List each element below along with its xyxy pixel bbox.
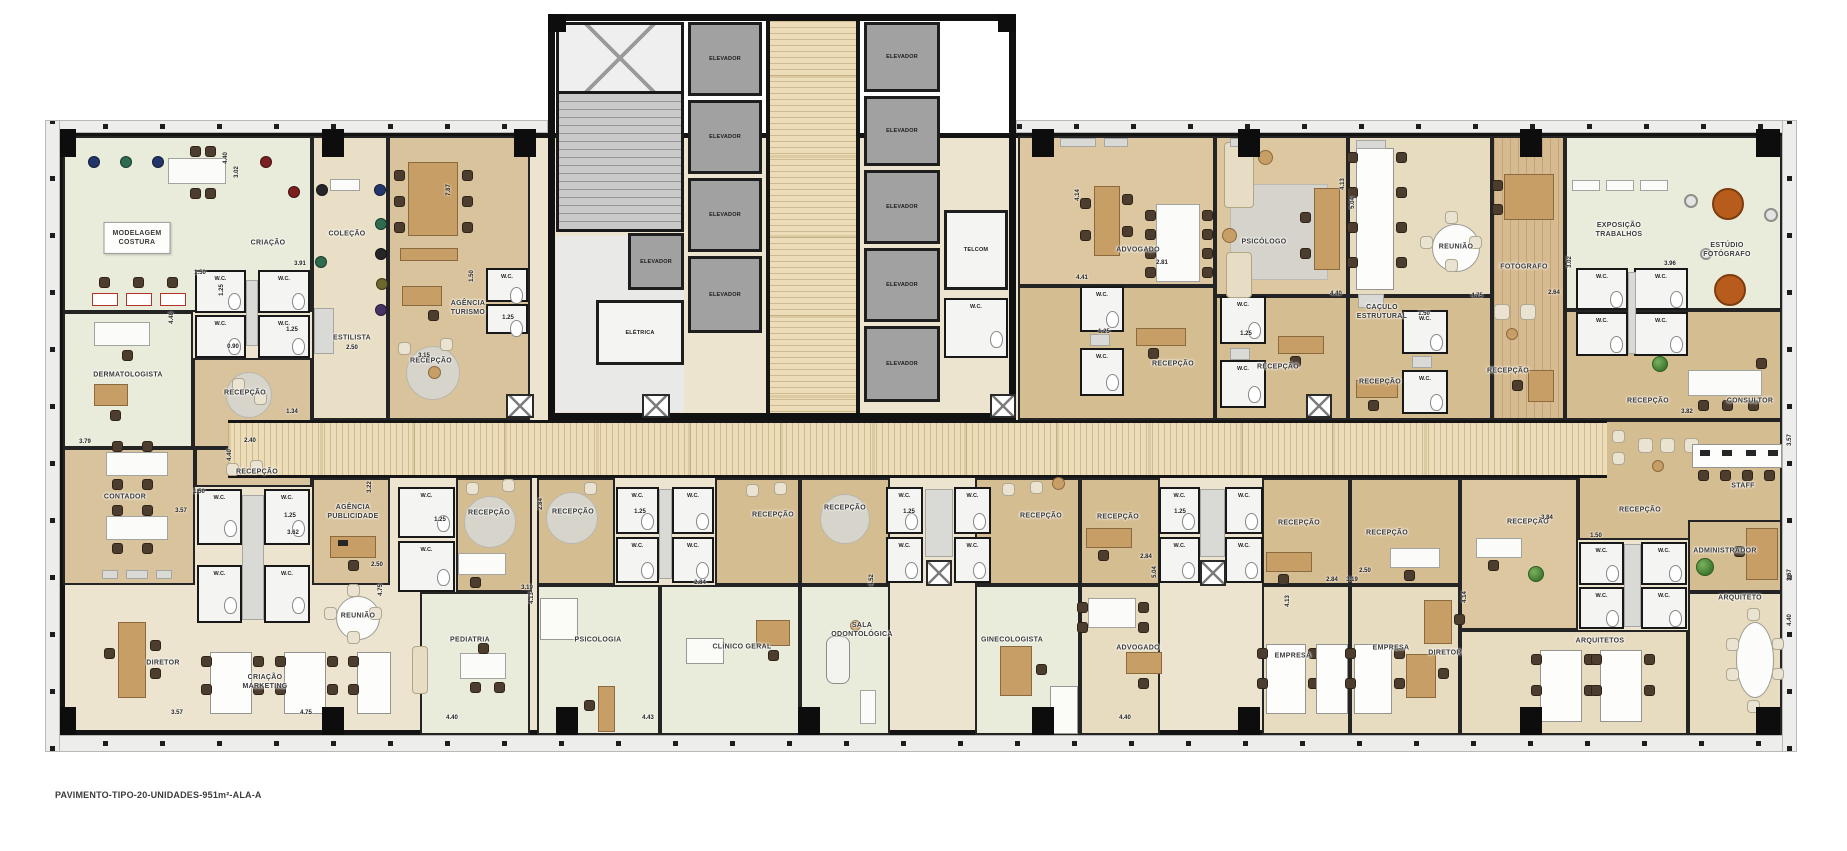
dimension-label: 4.40 xyxy=(1330,291,1342,297)
room-label: ADVOGADO xyxy=(1116,245,1160,254)
room-label: CONSULTOR xyxy=(1727,396,1773,405)
furniture-chair xyxy=(1591,685,1602,696)
furniture-chair xyxy=(142,505,153,516)
furniture-chair xyxy=(190,188,201,199)
dimension-label: 1.25 xyxy=(219,284,225,296)
furniture-chair xyxy=(1347,152,1358,163)
furniture-chair xyxy=(1488,560,1499,571)
wc-cell: W.C. xyxy=(954,537,991,583)
wc-label: W.C. xyxy=(1578,274,1626,280)
elevator-label: ELEVADOR xyxy=(886,204,918,210)
furniture-armchair xyxy=(1445,259,1458,272)
dimension-label: 3.84 xyxy=(1541,515,1553,521)
wc-label: W.C. xyxy=(1082,354,1122,360)
toilet-icon xyxy=(905,513,918,530)
dimension-label: 1.25 xyxy=(284,513,296,519)
wc-label: W.C. xyxy=(1161,493,1198,499)
furniture-chair xyxy=(1077,602,1088,613)
dimension-label: 2.84 xyxy=(538,498,544,510)
dimension-label: 4.14 xyxy=(1462,591,1468,603)
dimension-label: 3.02 xyxy=(234,166,240,178)
wc-cell: W.C. xyxy=(197,565,242,623)
furniture-chair xyxy=(122,350,133,361)
dimension-label: 4.40 xyxy=(227,449,233,461)
structural-column xyxy=(1520,707,1542,735)
toilet-icon xyxy=(1610,291,1623,308)
furniture-chair xyxy=(275,656,286,667)
furniture-mannequin-dot xyxy=(315,256,327,268)
furniture-desk-white xyxy=(1640,180,1668,191)
wc-label: W.C. xyxy=(1404,376,1446,382)
dimension-label: 1.50 xyxy=(1590,533,1602,539)
furniture-couch xyxy=(412,646,428,694)
furniture-chair xyxy=(1300,212,1311,223)
elevator-label: ELEVADOR xyxy=(709,212,741,218)
room-label: RECEPÇÃO xyxy=(752,510,794,519)
dimension-label: 1.25 xyxy=(434,517,446,523)
furniture-plant xyxy=(1696,558,1714,576)
dimension-label: 4.14 xyxy=(1075,189,1081,201)
furniture-desk-wood xyxy=(1314,188,1340,270)
furniture-chair xyxy=(1698,470,1709,481)
furniture-stool xyxy=(1222,228,1237,243)
furniture-armchair xyxy=(1494,304,1510,320)
furniture-chair xyxy=(1300,248,1311,259)
toilet-icon xyxy=(905,562,918,579)
dimension-label: 4.52 xyxy=(869,574,875,586)
dimension-label: 2.40 xyxy=(244,438,256,444)
furniture-armchair xyxy=(440,338,453,351)
furniture-desk-wood xyxy=(1266,552,1312,572)
dimension-label: 2.50 xyxy=(346,345,358,351)
furniture-armchair xyxy=(1747,608,1760,621)
floor-plan: PAVIMENTO-TIPO-20-UNIDADES-951m²-ALA-A E… xyxy=(0,0,1847,851)
wc-label: W.C. xyxy=(956,493,989,499)
furniture-desk-wood xyxy=(402,286,442,306)
furniture-chair xyxy=(142,479,153,490)
furniture-equipment xyxy=(242,495,264,620)
toilet-icon xyxy=(1106,374,1119,391)
furniture-chair xyxy=(110,410,121,421)
furniture-chair xyxy=(205,188,216,199)
furniture-armchair xyxy=(746,484,759,497)
furniture-workstation-bench xyxy=(1354,644,1392,714)
structural-column xyxy=(60,129,76,157)
elevator-cell: ELEVADOR xyxy=(688,256,762,333)
dimension-label: 4.43 xyxy=(642,715,654,721)
dimension-label: 3.96 xyxy=(1664,261,1676,267)
elevator-cell: ELEVADOR xyxy=(688,100,762,174)
elevator-label: ELEVADOR xyxy=(709,292,741,298)
dimension-label: 3.57 xyxy=(1787,434,1793,446)
furniture-equipment xyxy=(314,308,334,354)
wc-label: W.C. xyxy=(956,543,989,549)
dimension-label: 3.67 xyxy=(1787,569,1793,581)
ledge-bottom xyxy=(45,735,1797,752)
room-label: RECEPÇÃO xyxy=(1487,366,1529,375)
plan-caption: PAVIMENTO-TIPO-20-UNIDADES-951m²-ALA-A xyxy=(55,790,262,800)
wc-label: W.C. xyxy=(197,321,244,327)
furniture-chair xyxy=(1278,574,1289,585)
toilet-icon xyxy=(641,513,654,530)
furniture-desk-white xyxy=(460,653,506,679)
room-label: RECEPÇÃO xyxy=(824,503,866,512)
furniture-chair xyxy=(1036,664,1047,675)
furniture-chair xyxy=(201,656,212,667)
dimension-label: 1.25 xyxy=(634,509,646,515)
furniture-workstation-bench xyxy=(1316,644,1348,714)
furniture-chair xyxy=(1698,400,1709,411)
furniture-chair xyxy=(462,170,473,181)
furniture-mannequin-dot xyxy=(152,156,164,168)
furniture-armchair xyxy=(1726,668,1739,681)
toilet-icon xyxy=(641,562,654,579)
elevator-cell: ELEVADOR xyxy=(688,22,762,96)
room-label: EXPOSIÇÃO TRABALHOS xyxy=(1596,221,1643,239)
furniture-chair xyxy=(1368,400,1379,411)
elevator-cell: ELEVADOR xyxy=(864,326,940,402)
furniture-desk-white xyxy=(106,516,168,540)
furniture-exam-bed xyxy=(1050,686,1078,734)
telcom-room: TELCOM xyxy=(944,210,1008,290)
wc-cell: W.C. xyxy=(1579,542,1624,585)
dimension-label: 2.84 xyxy=(694,580,706,586)
wc-cell: W.C. xyxy=(672,487,714,534)
dimension-label: 5.04 xyxy=(1350,197,1356,209)
wc-cell: W.C. xyxy=(486,268,528,302)
furniture-chair xyxy=(1148,348,1159,359)
dimension-label: 1.50 xyxy=(194,270,206,276)
furniture-chair xyxy=(1145,210,1156,221)
dimension-label: 3.57 xyxy=(175,508,187,514)
furniture-mannequin-dot xyxy=(288,186,300,198)
furniture-armchair xyxy=(502,479,515,492)
furniture-equipment xyxy=(1356,140,1386,149)
toilet-icon xyxy=(510,320,523,337)
room-label: RECEPÇÃO xyxy=(468,508,510,517)
dimension-label: 2.64 xyxy=(1548,290,1560,296)
furniture-desk-white xyxy=(1688,370,1762,396)
furniture-workstation-bench xyxy=(357,652,391,714)
structural-column xyxy=(556,707,578,735)
elevator-label: ELEVADOR xyxy=(886,128,918,134)
toilet-icon xyxy=(1670,336,1683,353)
wc-label: W.C. xyxy=(400,493,453,499)
furniture-equipment xyxy=(156,570,172,579)
room-label: STAFF xyxy=(1731,481,1755,490)
furniture-studio-light xyxy=(1764,208,1778,222)
wc-cell: W.C. xyxy=(886,537,923,583)
furniture-chair xyxy=(1122,194,1133,205)
elevator-cell: ELEVADOR xyxy=(864,22,940,92)
furniture-chair xyxy=(1492,180,1503,191)
elevator-label: ELEVADOR xyxy=(886,361,918,367)
furniture-round-table-orange xyxy=(1712,188,1744,220)
furniture-oval-table xyxy=(1736,622,1774,698)
room-label: MODELAGEM COSTURA xyxy=(104,222,171,254)
dimension-label: 4.75 xyxy=(300,710,312,716)
furniture-equipment xyxy=(246,280,258,346)
furniture-desk-white xyxy=(1572,180,1600,191)
furniture-desk-white xyxy=(860,690,876,724)
furniture-chair xyxy=(142,441,153,452)
wc-cell: W.C. xyxy=(197,489,242,545)
furniture-desk-white xyxy=(106,452,168,476)
toilet-icon xyxy=(1182,562,1195,579)
furniture-chair xyxy=(1644,654,1655,665)
furniture-chair xyxy=(150,668,161,679)
furniture-armchair xyxy=(1520,304,1536,320)
toilet-icon xyxy=(990,331,1003,348)
room-label: AGÊNCIA PUBLICIDADE xyxy=(327,503,378,521)
dimension-label: 0.90 xyxy=(227,344,239,350)
furniture-desk-white xyxy=(1156,204,1200,282)
furniture-chair xyxy=(1394,678,1405,689)
room-label: EMPRESA xyxy=(1275,651,1312,660)
furniture-mannequin-dot xyxy=(374,184,386,196)
furniture-chair xyxy=(470,577,481,588)
furniture-workstation-bench xyxy=(1600,650,1642,722)
furniture-equipment xyxy=(102,570,118,579)
wc-label: W.C. xyxy=(1581,593,1622,599)
toilet-icon xyxy=(437,569,450,586)
elevator-label: ELEVADOR xyxy=(886,282,918,288)
furniture-desk-white xyxy=(330,179,360,191)
furniture-chair xyxy=(494,682,505,693)
wc-cell: W.C. xyxy=(398,541,455,592)
toilet-icon xyxy=(1606,565,1619,582)
furniture-sewing-machine xyxy=(160,293,186,306)
room-label: RECEPÇÃO xyxy=(1152,359,1194,368)
furniture-chair xyxy=(1454,614,1465,625)
elevator-label: ELEVADOR xyxy=(709,56,741,62)
dimension-label: 1.50 xyxy=(1418,311,1430,317)
wc-cell: W.C. xyxy=(258,270,310,313)
furniture-desk-white xyxy=(94,322,150,346)
wc-cell: W.C. xyxy=(672,537,714,583)
service-shaft xyxy=(642,394,670,418)
furniture-chair xyxy=(327,656,338,667)
room-label: PSICÓLOGO xyxy=(1241,237,1286,246)
furniture-chair xyxy=(462,196,473,207)
wc-label: W.C. xyxy=(1581,548,1622,554)
furniture-armchair xyxy=(1030,481,1043,494)
wc-label: W.C. xyxy=(1636,274,1686,280)
main-corridor xyxy=(228,420,1607,478)
dimension-label: 3.19 xyxy=(1346,577,1358,583)
wc-cell: W.C. xyxy=(1579,587,1624,629)
toilet-icon xyxy=(1245,562,1258,579)
dimension-label: 2.84 xyxy=(1326,577,1338,583)
toilet-icon xyxy=(973,513,986,530)
dimension-label: 2.50 xyxy=(1359,568,1371,574)
furniture-chair xyxy=(768,650,779,661)
room-label: CRIAÇÃO xyxy=(251,238,286,247)
dimension-label: 4.13 xyxy=(529,592,535,604)
toilet-icon xyxy=(696,513,709,530)
furniture-chair xyxy=(1404,570,1415,581)
furniture-armchair xyxy=(1445,211,1458,224)
furniture-plant xyxy=(1652,356,1668,372)
wc-label: W.C. xyxy=(266,571,308,577)
wc-label: W.C. xyxy=(197,276,244,282)
dimension-label: 4.40 xyxy=(223,152,229,164)
service-shaft xyxy=(1200,560,1226,586)
toilet-icon xyxy=(1669,610,1682,627)
furniture-chair xyxy=(1257,648,1268,659)
furniture-chair xyxy=(1145,267,1156,278)
furniture-exam-bed xyxy=(540,598,578,640)
wc-label: W.C. xyxy=(1578,318,1626,324)
wc-cell: W.C. xyxy=(1080,348,1124,396)
toilet-icon xyxy=(1248,386,1261,403)
furniture-desk-wood xyxy=(408,162,458,236)
room-label: PEDIATRIA xyxy=(450,635,490,644)
room-label: RECEPÇÃO xyxy=(224,388,266,397)
furniture-sewing-machine xyxy=(92,293,118,306)
furniture-chair xyxy=(462,222,473,233)
furniture-mannequin-dot xyxy=(375,218,387,230)
dimension-label: 1.50 xyxy=(193,489,205,495)
dimension-label: 4.40 xyxy=(1119,715,1131,721)
furniture-desk-white xyxy=(1476,538,1522,558)
toilet-icon xyxy=(1610,336,1623,353)
structural-column xyxy=(1756,129,1780,157)
service-shaft xyxy=(1306,394,1332,418)
furniture-armchair xyxy=(774,482,787,495)
toilet-icon xyxy=(224,597,237,614)
furniture-chair xyxy=(1644,685,1655,696)
furniture-chair xyxy=(112,505,123,516)
toilet-icon xyxy=(696,562,709,579)
furniture-workstation-bench xyxy=(1540,650,1582,722)
toilet-icon xyxy=(228,293,241,310)
elevator-cell: ELEVADOR xyxy=(628,233,684,290)
furniture-chair xyxy=(205,146,216,157)
structural-column xyxy=(322,707,344,735)
furniture-chair xyxy=(1202,248,1213,259)
structural-column xyxy=(1032,707,1054,735)
furniture-equipment xyxy=(1060,138,1096,147)
elevator-label: ELEVADOR xyxy=(886,54,918,60)
furniture-stool xyxy=(1052,477,1065,490)
furniture-mannequin-dot xyxy=(316,184,328,196)
dimension-label: 3.91 xyxy=(294,261,306,267)
furniture-chair xyxy=(1531,654,1542,665)
wc-cell: W.C. xyxy=(954,487,991,534)
furniture-dental-chair xyxy=(826,636,850,684)
dimension-label: 1.50 xyxy=(469,270,475,282)
furniture-desk-white xyxy=(458,553,506,575)
wc-label: W.C. xyxy=(618,543,657,549)
wc-label: W.C. xyxy=(888,543,921,549)
dimension-label: 4.41 xyxy=(1076,275,1088,281)
furniture-chair xyxy=(1202,210,1213,221)
ledge-top-left xyxy=(45,120,548,133)
toilet-icon xyxy=(1606,610,1619,627)
furniture-chair xyxy=(142,543,153,554)
furniture-monitor xyxy=(1700,450,1710,456)
ledge-left xyxy=(45,120,60,752)
wc-cell: W.C. xyxy=(616,537,659,583)
structural-column xyxy=(322,129,344,157)
furniture-chair xyxy=(1080,230,1091,241)
elevator-cell: ELEVADOR xyxy=(864,170,940,244)
wc-label: W.C. xyxy=(1082,292,1122,298)
room-label: DIRETOR xyxy=(146,658,179,667)
furniture-desk-wood xyxy=(330,536,376,558)
furniture-chair xyxy=(112,441,123,452)
furniture-workstation-bench xyxy=(1692,444,1782,468)
furniture-chair xyxy=(1591,654,1602,665)
furniture-armchair xyxy=(398,342,411,355)
furniture-desk-wood xyxy=(1126,652,1162,674)
furniture-chair xyxy=(327,684,338,695)
furniture-equipment xyxy=(925,489,953,557)
wc-cell: W.C. xyxy=(195,315,246,358)
dimension-label: 7.87 xyxy=(446,184,452,196)
wc-cell: W.C. xyxy=(258,315,310,358)
elevator-label: ELEVADOR xyxy=(640,259,672,265)
dimension-label: 1.34 xyxy=(286,409,298,415)
wc-label: W.C. xyxy=(1643,548,1685,554)
furniture-chair xyxy=(1145,229,1156,240)
furniture-chair xyxy=(1138,622,1149,633)
furniture-desk-white xyxy=(1606,180,1634,191)
dimension-label: 3.82 xyxy=(1681,409,1693,415)
furniture-desk-wood xyxy=(118,622,146,698)
dimension-label: 2.84 xyxy=(1140,554,1152,560)
wc-cell: W.C. xyxy=(944,298,1008,358)
wc-cell: W.C. xyxy=(264,565,310,623)
room-label: REUNIÃO xyxy=(1439,242,1473,251)
furniture-chair xyxy=(428,310,439,321)
furniture-desk-white xyxy=(1088,598,1136,628)
room-label: GINECOLOGISTA xyxy=(981,635,1043,644)
furniture-mannequin-dot xyxy=(375,248,387,260)
zone-clinico-geral xyxy=(660,585,800,735)
stairs xyxy=(556,90,684,232)
furniture-stool xyxy=(1258,150,1273,165)
furniture-plant xyxy=(1528,566,1544,582)
furniture-armchair xyxy=(1612,452,1625,465)
wc-cell: W.C. xyxy=(1641,542,1687,585)
furniture-chair xyxy=(1098,550,1109,561)
structural-column xyxy=(60,707,76,735)
furniture-chair xyxy=(348,684,359,695)
furniture-desk-wood xyxy=(1504,174,1554,220)
room-label: ADMINISTRADOR xyxy=(1693,546,1756,555)
dimension-label: 1.25 xyxy=(1098,329,1110,335)
wc-cell: W.C. xyxy=(1641,587,1687,629)
furniture-armchair xyxy=(347,631,360,644)
furniture-stool xyxy=(428,366,441,379)
wc-label: W.C. xyxy=(400,547,453,553)
furniture-monitor xyxy=(338,540,348,546)
furniture-chair xyxy=(348,656,359,667)
toilet-icon xyxy=(1669,565,1682,582)
furniture-desk-wood xyxy=(1278,336,1324,354)
dimension-label: 1.25 xyxy=(1240,331,1252,337)
furniture-desk-wood xyxy=(1424,600,1452,644)
furniture-round-rug xyxy=(464,496,516,548)
furniture-round-rug xyxy=(546,492,598,544)
furniture-chair xyxy=(1202,267,1213,278)
furniture-chair xyxy=(1492,204,1503,215)
furniture-equipment xyxy=(659,489,672,579)
wc-label: W.C. xyxy=(1227,493,1261,499)
toilet-icon xyxy=(292,597,305,614)
